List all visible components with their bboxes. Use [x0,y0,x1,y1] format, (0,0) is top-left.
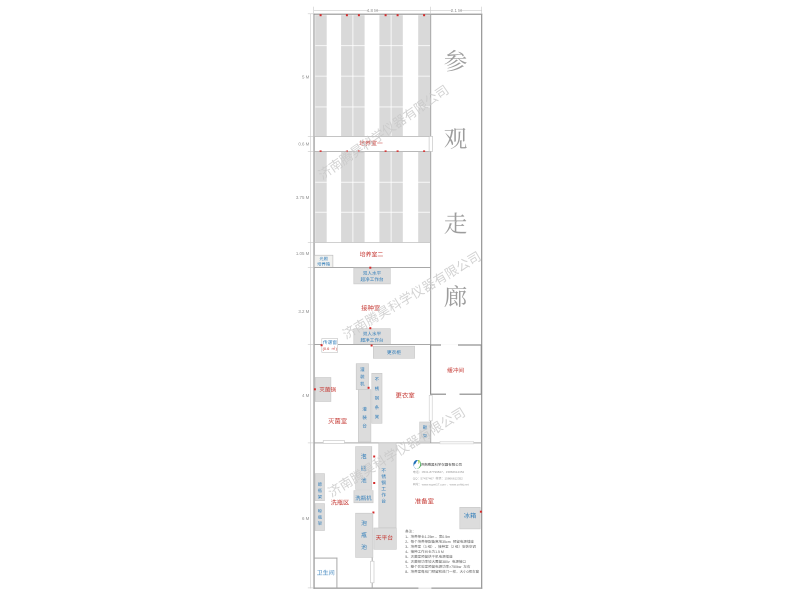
svg-text:15866612352: 15866612352 [446,470,465,474]
svg-text:6 M: 6 M [302,516,310,521]
svg-text:3.75 M: 3.75 M [296,195,310,200]
svg-text:8: 8 [405,570,407,574]
svg-text:57437467: 57437467 [421,476,435,480]
svg-text:1: 1 [405,535,407,539]
svg-text:0531-87799827: 0531-87799827 [422,470,443,474]
svg-text:www.sypet17.com: www.sypet17.com [422,482,447,486]
svg-text:0.5m: 0.5m [442,535,450,539]
svg-text:15866612352: 15866612352 [445,476,464,480]
svg-text:0: 0 [467,570,469,574]
svg-text:QQ: QQ [413,476,418,480]
svg-text:2: 2 [452,545,454,549]
svg-text:3: 3 [405,545,407,549]
svg-text:3.2 M: 3.2 M [298,309,309,314]
svg-text:4 M: 4 M [302,393,310,398]
svg-text:4.8 M: 4.8 M [367,8,378,13]
svg-text:2.1 M: 2.1 M [451,8,462,13]
svg-text:0.6 M: 0.6 M [298,142,309,147]
svg-text:35cm: 35cm [442,540,451,544]
svg-text:2: 2 [405,540,407,544]
svg-text:7: 7 [405,565,407,569]
svg-text:>750kw: >750kw [449,565,462,569]
svg-text:(0.6: (0.6 [323,346,330,351]
svg-text:3: 3 [425,545,427,549]
svg-text:www.cnhkj.net: www.cnhkj.net [450,482,469,486]
svg-text:5 M: 5 M [302,75,310,80]
svg-text:4: 4 [405,550,407,554]
svg-text:1.5 M: 1.5 M [435,550,444,554]
svg-text:6: 6 [405,560,407,564]
svg-text:5: 5 [405,555,407,559]
svg-text:380v: 380v [442,560,450,564]
svg-text:1.05 M: 1.05 M [296,251,310,256]
svg-text:1.25m: 1.25m [425,535,435,539]
